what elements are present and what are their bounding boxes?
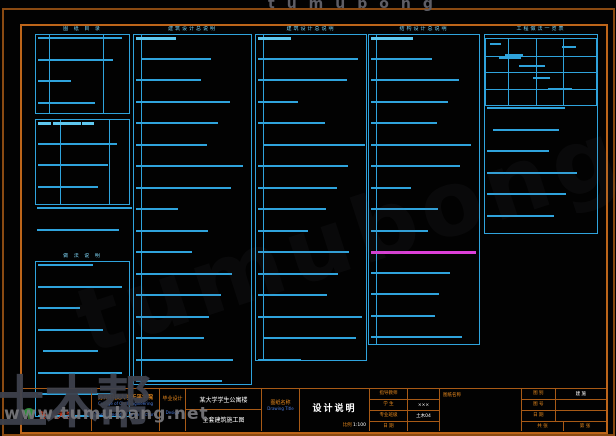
fields-left-cell: 指导教师 学 生××× 专业班级土木04 日 期 [370,389,440,431]
text-line-bar [38,164,108,166]
design-tag: 毕业设计 [160,395,185,402]
column-heading: 做 法 说 明 [35,253,130,261]
text-line-bar [38,307,80,309]
text-line-bar [37,229,119,231]
text-line-bar [136,359,233,361]
text-line [134,380,251,385]
text-line [36,307,129,326]
text-line [134,337,251,356]
text-line-bar [136,273,232,275]
university-logo-icon [24,408,34,420]
text-line [369,165,479,184]
text-line-bar [487,107,564,109]
cell-text-bar [562,46,576,48]
text-line-bar [258,230,308,232]
text-line [256,208,366,227]
drawing-title: 设计说明 [300,401,369,414]
text-line-bar [38,264,93,266]
text-line-bar [258,122,325,124]
text-line-bar [371,165,460,167]
text-line [36,264,129,283]
text-line-bar [371,293,439,295]
fields-right-cell: 图 别建 施 图 号 日 期 共 张 第 张 [522,389,606,431]
text-line-bar [38,59,113,61]
text-line [36,143,129,162]
text-line [369,79,479,98]
sub-table [485,38,597,106]
university-name: 苏州大学 [39,410,75,420]
text-line [134,144,251,163]
text-line-bar [371,251,476,254]
text-line [485,193,597,212]
text-line-bar [136,208,178,210]
text-line [134,79,251,98]
spec-table [133,34,252,385]
text-line [256,122,366,141]
table-gridline [486,72,596,73]
text-line-bar [258,37,291,40]
text-line [134,165,251,184]
text-line-bar [136,144,206,146]
text-line-bar [258,273,338,275]
table-gridline [486,89,596,90]
text-line [369,208,479,227]
note-lines [35,205,130,248]
text-line-bar [136,165,242,167]
text-line-bar [264,144,365,146]
text-line [256,144,366,163]
text-line [134,122,251,141]
text-line-bar [136,337,204,339]
text-line [369,187,479,206]
text-line [369,37,479,56]
text-line-bar [136,122,218,124]
school-name-en: College of Civil Engineering [92,401,159,406]
text-line [35,207,130,226]
text-line [485,107,597,126]
text-line-bar [38,186,98,188]
text-line-bar [38,80,71,82]
text-line-bar [53,122,81,125]
text-line [256,316,366,335]
text-line-bar [371,79,459,81]
spec-table [35,34,130,114]
text-line [256,273,366,292]
text-line [256,58,366,77]
text-line-bar [38,143,117,145]
text-line-bar [38,329,103,331]
text-line [36,186,129,205]
column-heading: 建筑设计总说明 [133,26,252,34]
scale-value: 1:100 [353,423,366,428]
text-line [256,165,366,184]
text-line-bar [258,316,361,318]
text-line [256,187,366,206]
text-line-bar [136,294,220,296]
text-line-bar [371,122,437,124]
column-heading: 工程做法一览表 [484,26,598,34]
text-line [256,101,366,120]
text-line-bar [487,193,565,195]
text-line [35,229,130,248]
drawing-title-label-en: Drawing Title [262,406,299,411]
text-line [369,144,479,163]
text-line-bar [136,230,207,232]
text-line [369,122,479,141]
text-line-bar [258,187,337,189]
text-line-bar [258,101,298,103]
text-line-bar [258,251,349,253]
text-line-bar [142,58,211,60]
column-heading: 建筑设计总说明 [255,26,367,34]
text-line-bar [258,359,301,361]
text-line [369,272,479,291]
text-line-bar [371,272,450,274]
text-line [134,316,251,335]
sheet-number-label: 第 张 [564,422,606,431]
spec-column-structural-notes: 结构设计总说明◆ 屋面排水构造做法 [368,26,480,345]
drawing-name-cell: 图纸名称 [440,389,522,431]
cell-text-bar [548,88,572,90]
text-line-bar [136,79,200,81]
text-line-bar [371,315,435,317]
text-line-bar [487,172,577,174]
drawing-title-label-cell: 图纸名称 Drawing Title [262,389,300,431]
text-line [36,122,129,141]
spec-column-general-notes-1: 建筑设计总说明 [133,26,252,385]
text-line-bar [82,122,93,125]
field-value: 土木04 [408,412,439,421]
field-label: 图 别 [522,389,556,399]
cell-text-bar [519,65,545,67]
text-line [369,230,479,249]
spec-table: ◆ 主要建筑构造做法◆ 内墙面工程做法 [255,34,367,361]
field-value: 建 施 [556,390,606,399]
field-label: 指导教师 [370,389,408,399]
text-line-bar [37,207,132,209]
text-line [134,251,251,270]
table-gridline [486,56,596,57]
text-line-bar [43,350,99,352]
cell-text-bar [490,43,501,45]
text-line [36,37,129,56]
text-line [134,359,251,378]
text-line [256,251,366,270]
text-line-bar [136,187,231,189]
text-line-bar [264,337,356,339]
text-line [134,101,251,120]
text-line-bar [371,336,462,338]
column-heading: 结构设计总说明 [368,26,480,34]
text-line [256,359,366,362]
school-cell: 苏州科技大学天平学院 College of Civil Engineering … [92,389,160,431]
field-label: 日 期 [522,411,556,421]
cad-drawing-sheet: 图 纸 目 录做 法 说 明建筑设计总说明建筑设计总说明◆ 主要建筑构造做法◆ … [0,0,616,436]
text-line [134,208,251,227]
spec-table [35,119,130,205]
text-line [134,273,251,292]
text-line [36,102,129,115]
logo-cell: 苏州大学 [20,389,92,431]
text-line-bar [487,215,554,217]
project-name-line1: 某大学学生公寓楼 [186,395,261,410]
text-line [134,230,251,249]
text-line-bar [136,101,230,103]
text-line-bar [258,294,327,296]
project-cell: 某大学学生公寓楼 全套建筑施工图 [186,389,262,431]
drawing-title-cell: 设计说明 比例 1:100 [300,389,370,431]
text-line-bar [371,37,413,40]
text-line [369,251,479,270]
field-value: ××× [408,401,439,410]
text-line-bar [371,101,448,103]
field-label: 图 号 [522,400,556,410]
text-line-bar [38,37,123,39]
text-line [134,187,251,206]
tag-cell: 毕业设计 Design [160,389,186,431]
spec-table [484,34,598,234]
text-line [134,294,251,313]
text-line [485,172,597,191]
spec-column-materials-table: 工程做法一览表 [484,26,598,234]
design-tag-en: Design [160,410,185,415]
text-line [369,336,479,345]
text-line [369,101,479,120]
text-line [36,350,129,369]
text-line [369,293,479,312]
department-name-en: Department of Architecture [92,413,159,418]
text-line [134,37,251,56]
field-label: 日 期 [370,422,408,431]
text-line-bar [371,144,471,146]
text-line [36,329,129,348]
text-line [36,80,129,99]
text-line [134,58,251,77]
text-line [485,129,597,148]
text-line [36,164,129,183]
text-line-bar [136,380,221,382]
spec-column-general-notes-2: 建筑设计总说明◆ 主要建筑构造做法◆ 内墙面工程做法 [255,26,367,361]
text-line [256,337,366,356]
text-line-bar [371,58,432,60]
cell-text-bar [505,54,524,56]
school-name: 苏州科技大学天平学院 [92,393,159,401]
column-heading: 图 纸 目 录 [35,26,130,34]
text-line-bar [493,129,559,131]
field-label: 专业班级 [370,411,408,421]
text-line-bar [136,251,192,253]
text-line [369,315,479,334]
text-line-bar [136,316,209,318]
text-line [369,58,479,77]
text-line-bar [38,102,95,104]
text-line-bar [258,208,326,210]
cell-text-bar [533,77,550,79]
drawing-title-label: 图纸名称 [262,399,299,406]
drawing-name-label: 图纸名称 [443,392,461,398]
scale-label: 比例 [343,423,352,428]
text-line-bar [371,208,438,210]
text-line-bar [371,230,428,232]
text-line-bar [258,58,358,60]
text-line-bar [258,79,347,81]
spec-column-drawing-index: 图 纸 目 录做 法 说 明 [35,26,130,417]
text-line [36,286,129,305]
project-name-line2: 全套建筑施工图 [186,415,261,424]
sheet-count-label: 共 张 [522,422,564,431]
text-line-bar [258,165,348,167]
text-line [485,150,597,169]
text-line-bar [371,187,411,189]
text-line-bar [136,37,176,40]
text-line [256,37,366,56]
text-line-bar [38,286,122,288]
text-line-bar [38,122,51,125]
field-label: 学 生 [370,400,408,410]
spec-table: ◆ 屋面排水构造做法 [368,34,480,345]
text-line [256,79,366,98]
text-line-bar [487,150,549,152]
text-line [485,215,597,234]
title-block: 苏州大学 苏州科技大学天平学院 College of Civil Enginee… [20,388,606,431]
cell-text-bar [499,57,521,59]
text-line-bar [38,372,123,374]
text-line [256,294,366,313]
text-line [256,230,366,249]
text-line [36,59,129,78]
